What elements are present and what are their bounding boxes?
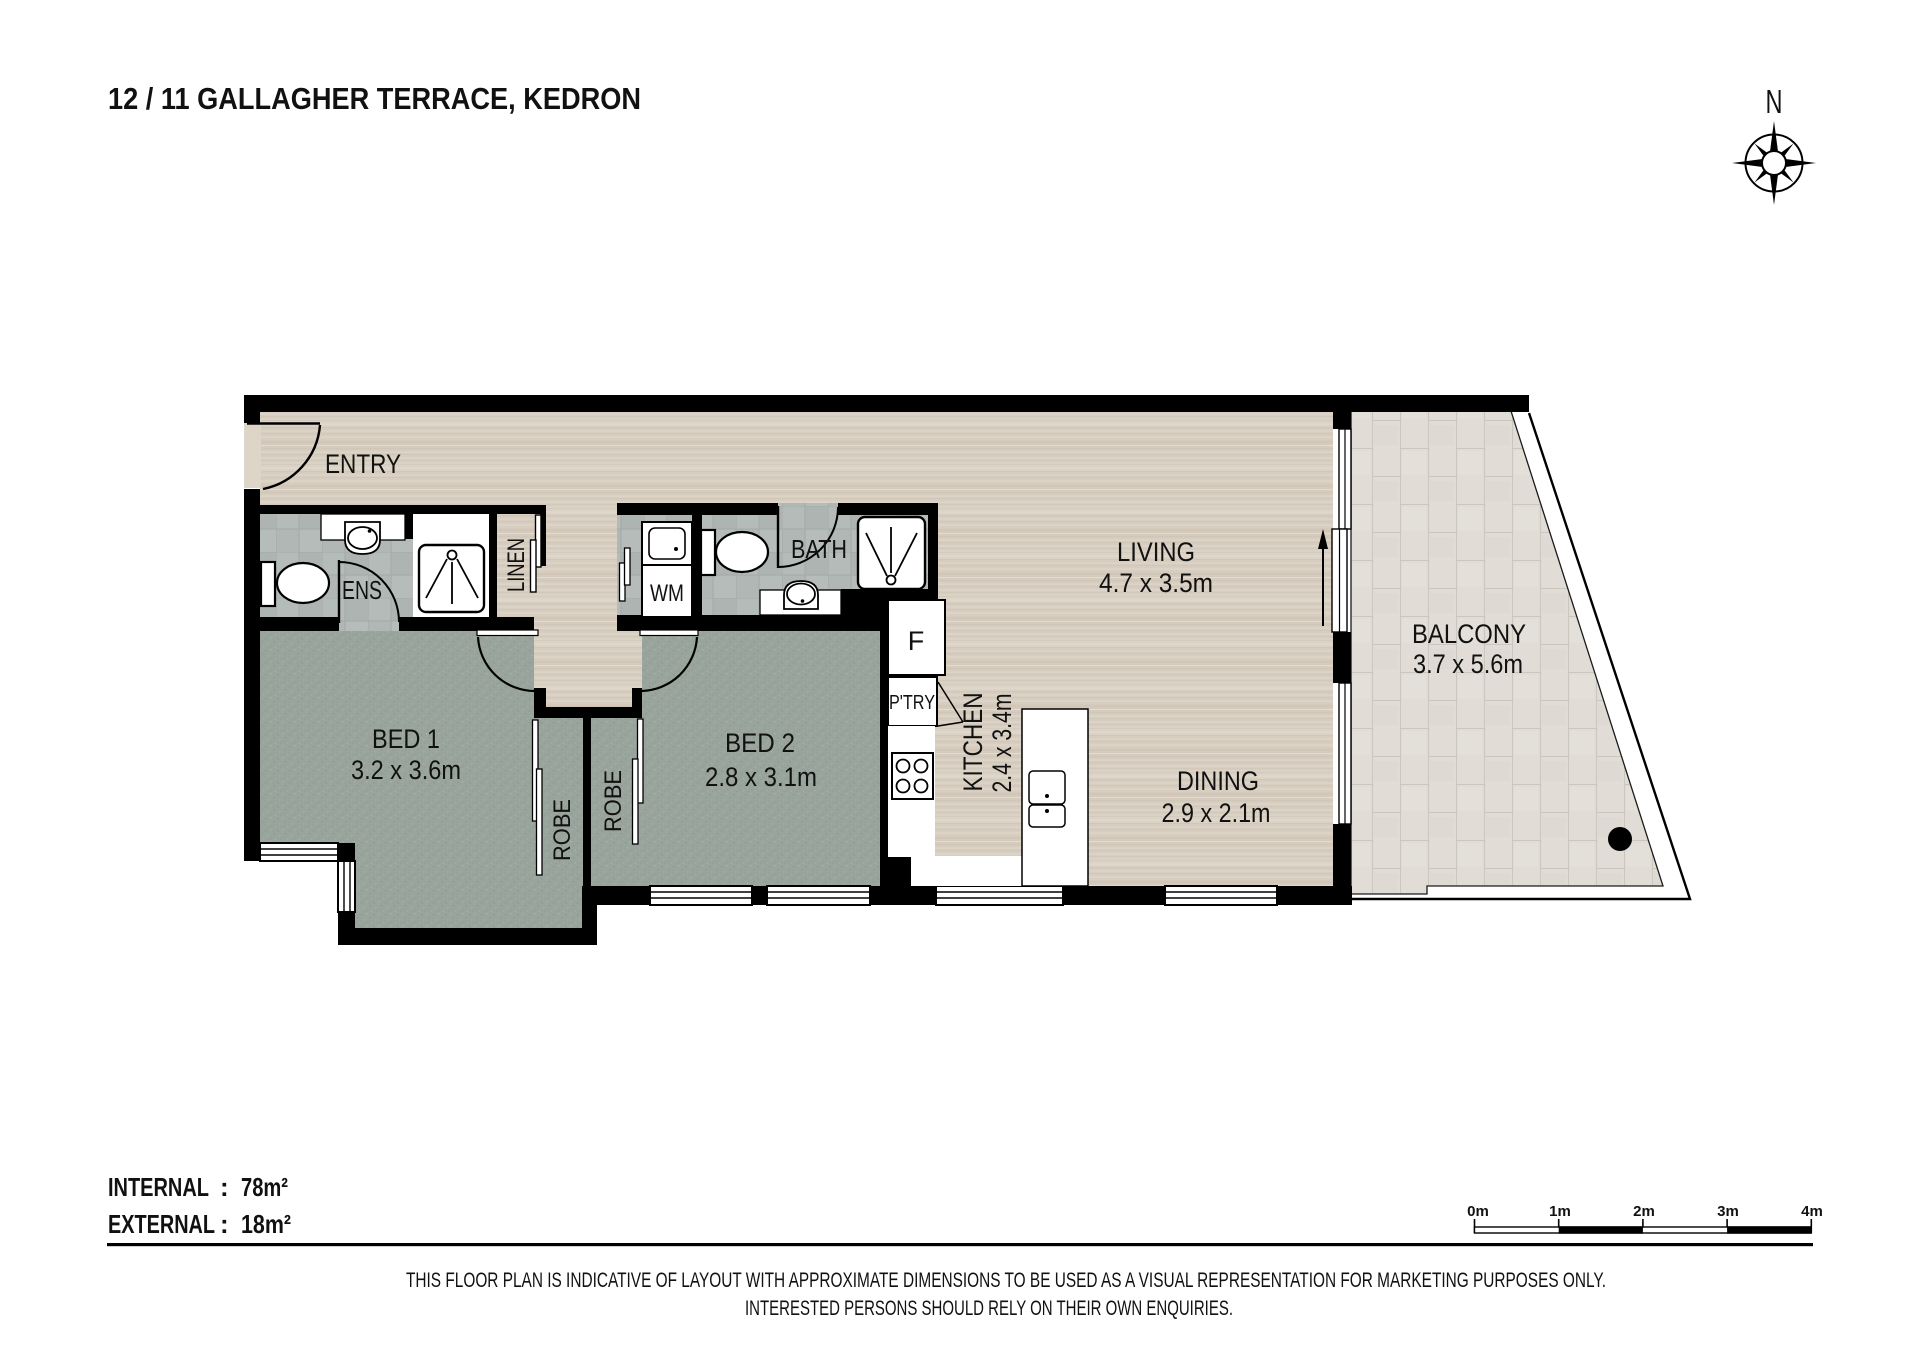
svg-text::: : [220,1172,229,1202]
svg-text:ENS: ENS [342,575,382,605]
svg-text:BALCONY: BALCONY [1412,619,1526,649]
svg-text:3m: 3m [1717,1203,1739,1220]
svg-text:0m: 0m [1467,1203,1489,1220]
svg-text:LIVING: LIVING [1117,537,1195,567]
svg-text::: : [220,1209,229,1239]
svg-text:ROBE: ROBE [549,799,576,861]
svg-text:4.7 x 3.5m: 4.7 x 3.5m [1099,568,1213,598]
svg-text:2.8 x 3.1m: 2.8 x 3.1m [705,762,817,792]
svg-text:ROBE: ROBE [600,770,627,832]
svg-text:KITCHEN: KITCHEN [958,693,988,792]
svg-text:P'TRY: P'TRY [889,692,935,714]
svg-text:BED 2: BED 2 [725,728,795,758]
svg-text:4m: 4m [1801,1203,1823,1220]
svg-text:N: N [1766,83,1783,120]
svg-text:2.9 x 2.1m: 2.9 x 2.1m [1162,798,1271,828]
svg-text:DINING: DINING [1177,766,1259,796]
svg-text:INTERNAL: INTERNAL [108,1172,209,1202]
svg-text:INTERESTED PERSONS SHOULD RELY: INTERESTED PERSONS SHOULD RELY ON THEIR … [745,1297,1233,1320]
svg-text:3.7 x 5.6m: 3.7 x 5.6m [1413,649,1523,679]
svg-text:BED 1: BED 1 [372,724,440,754]
svg-text:LINEN: LINEN [503,538,530,592]
svg-text:3.2 x 3.6m: 3.2 x 3.6m [351,755,461,785]
svg-text:WM: WM [650,580,684,607]
svg-text:F: F [908,626,925,656]
svg-text:EXTERNAL: EXTERNAL [108,1209,215,1239]
svg-text:78m²: 78m² [241,1172,288,1202]
svg-text:2m: 2m [1633,1203,1655,1220]
svg-text:12 / 11 GALLAGHER TERRACE, KED: 12 / 11 GALLAGHER TERRACE, KEDRON [108,81,641,116]
svg-text:1m: 1m [1549,1203,1571,1220]
svg-text:ENTRY: ENTRY [325,449,401,479]
svg-text:BATH: BATH [791,534,847,564]
svg-text:2.4 x 3.4m: 2.4 x 3.4m [987,694,1017,793]
svg-text:18m²: 18m² [241,1209,291,1239]
svg-text:THIS FLOOR PLAN IS INDICATIVE: THIS FLOOR PLAN IS INDICATIVE OF LAYOUT … [406,1269,1606,1292]
